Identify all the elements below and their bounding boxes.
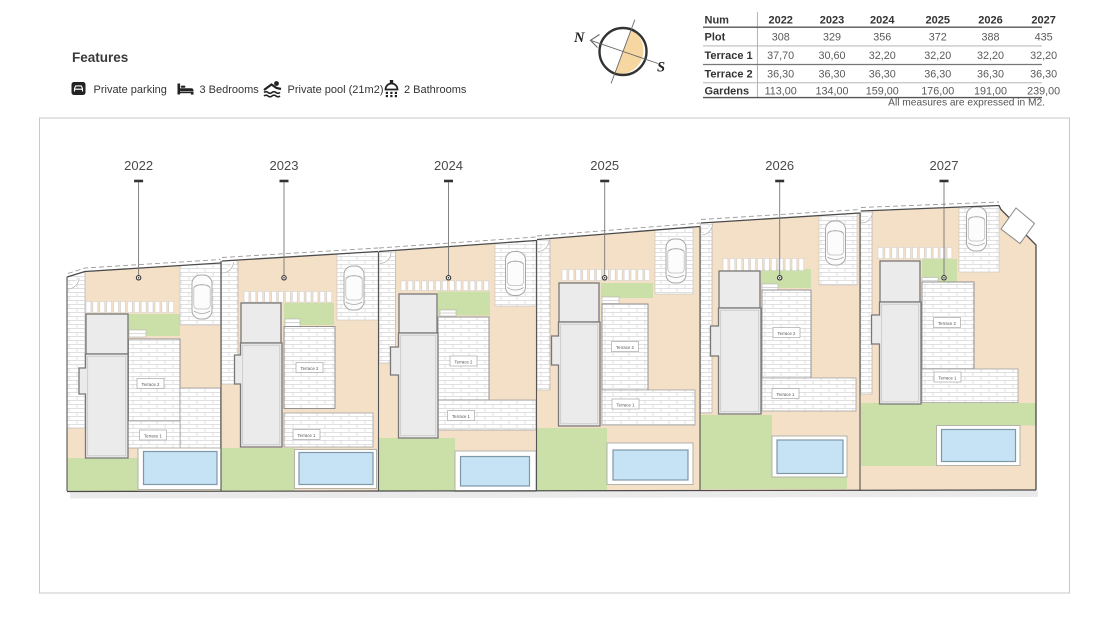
svg-text:2026: 2026 — [765, 158, 794, 173]
svg-text:All measures are expressed in: All measures are expressed in M2. — [888, 98, 1045, 109]
svg-text:Terrace 1: Terrace 1 — [777, 392, 796, 397]
svg-text:329: 329 — [823, 32, 841, 44]
svg-text:Terrace 1: Terrace 1 — [298, 433, 317, 438]
svg-text:Terrace 2: Terrace 2 — [705, 69, 753, 81]
svg-text:Private parking: Private parking — [94, 84, 167, 96]
svg-text:372: 372 — [929, 32, 947, 44]
svg-text:435: 435 — [1035, 32, 1053, 44]
svg-text:Terrace 2: Terrace 2 — [455, 359, 474, 364]
svg-text:36,30: 36,30 — [977, 69, 1004, 81]
svg-text:37,70: 37,70 — [767, 50, 794, 62]
svg-text:356: 356 — [873, 32, 891, 44]
svg-text:2027: 2027 — [930, 158, 959, 173]
svg-text:239,00: 239,00 — [1027, 86, 1060, 98]
svg-text:Terrace 2: Terrace 2 — [778, 331, 797, 336]
svg-text:113,00: 113,00 — [765, 86, 797, 98]
svg-text:2023: 2023 — [820, 15, 844, 27]
svg-text:Gardens: Gardens — [705, 86, 750, 98]
svg-text:Terrace 1: Terrace 1 — [617, 402, 636, 407]
svg-text:388: 388 — [981, 32, 999, 44]
svg-text:N: N — [573, 30, 585, 46]
svg-text:Private pool (21m2): Private pool (21m2) — [288, 84, 384, 96]
svg-text:36,30: 36,30 — [767, 69, 794, 81]
svg-text:36,30: 36,30 — [818, 69, 845, 81]
svg-text:Terrace 2: Terrace 2 — [938, 321, 957, 326]
svg-text:134,00: 134,00 — [815, 86, 848, 98]
svg-text:36,30: 36,30 — [1030, 69, 1057, 81]
svg-text:32,20: 32,20 — [1030, 50, 1057, 62]
svg-text:2024: 2024 — [870, 15, 895, 27]
svg-text:Terrace 2: Terrace 2 — [301, 366, 320, 371]
svg-text:36,30: 36,30 — [869, 69, 896, 81]
svg-text:2025: 2025 — [590, 158, 619, 173]
svg-text:Terrace 2: Terrace 2 — [616, 345, 635, 350]
svg-text:2023: 2023 — [270, 158, 299, 173]
svg-text:Num: Num — [705, 15, 730, 27]
svg-text:159,00: 159,00 — [866, 86, 899, 98]
svg-text:32,20: 32,20 — [977, 50, 1004, 62]
svg-text:2027: 2027 — [1031, 15, 1055, 27]
svg-text:Features: Features — [72, 50, 128, 65]
svg-text:2022: 2022 — [124, 158, 153, 173]
svg-text:2 Bathrooms: 2 Bathrooms — [404, 84, 467, 96]
svg-text:S: S — [657, 60, 665, 76]
svg-text:Terrace 1: Terrace 1 — [939, 375, 958, 380]
svg-text:Terrace 1: Terrace 1 — [452, 414, 471, 419]
svg-text:Terrace 1: Terrace 1 — [144, 433, 163, 438]
svg-text:2025: 2025 — [926, 15, 950, 27]
svg-text:2026: 2026 — [978, 15, 1002, 27]
svg-text:3 Bedrooms: 3 Bedrooms — [200, 84, 260, 96]
svg-text:30,60: 30,60 — [818, 50, 845, 62]
svg-text:191,00: 191,00 — [974, 86, 1007, 98]
svg-text:308: 308 — [772, 32, 790, 44]
svg-text:Plot: Plot — [705, 32, 726, 44]
svg-text:2022: 2022 — [768, 15, 792, 27]
svg-text:Terrace 1: Terrace 1 — [705, 50, 753, 62]
svg-text:Terrace 2: Terrace 2 — [142, 382, 161, 387]
svg-text:36,30: 36,30 — [924, 69, 951, 81]
svg-text:32,20: 32,20 — [924, 50, 951, 62]
svg-text:176,00: 176,00 — [921, 86, 954, 98]
svg-text:2024: 2024 — [434, 158, 463, 173]
svg-text:32,20: 32,20 — [869, 50, 896, 62]
